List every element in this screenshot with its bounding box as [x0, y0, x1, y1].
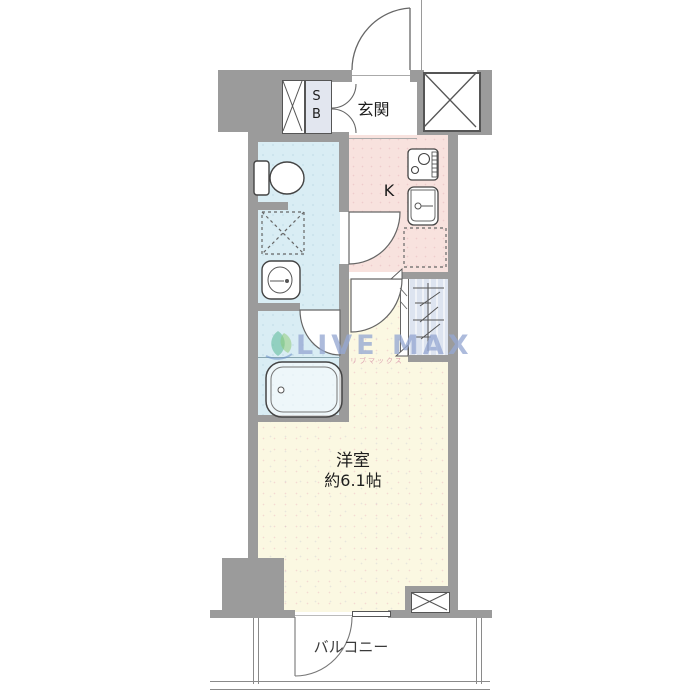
balcony-label: バルコニー — [212, 636, 490, 657]
shoe-box-label: SB — [309, 89, 324, 125]
bathtub-icon — [266, 362, 342, 417]
main-room-door-swing-icon — [351, 269, 402, 332]
entrance-label: 玄関 — [330, 96, 417, 120]
stove-icon — [408, 149, 438, 180]
toilet-icon — [254, 161, 304, 195]
entrance-door-swing-icon — [352, 8, 410, 70]
pipe-space-x-bottom-icon — [412, 593, 447, 610]
kitchen-sink-icon — [408, 187, 438, 225]
washbasin-icon — [262, 261, 300, 299]
pipe-space-x-icon — [283, 81, 302, 131]
washing-machine-space-icon — [262, 212, 304, 254]
elevator-shaft-x-icon — [424, 73, 476, 127]
main-room-size-label: 約6.1帖 — [258, 467, 448, 491]
washroom-door-swing-icon — [349, 212, 400, 264]
floor-plan: 玄関 SB K 洋室 約6.1帖 バルコニー LIVE MAX リブマックス — [0, 0, 700, 700]
livemax-logo-icon — [266, 331, 292, 359]
kitchen-label: K — [374, 181, 404, 200]
door-leaf-arrow-icon — [391, 269, 402, 279]
grill-icon — [432, 152, 437, 177]
refrigerator-space-icon — [404, 228, 446, 267]
watermark-subtext: リブマックス — [350, 356, 404, 366]
